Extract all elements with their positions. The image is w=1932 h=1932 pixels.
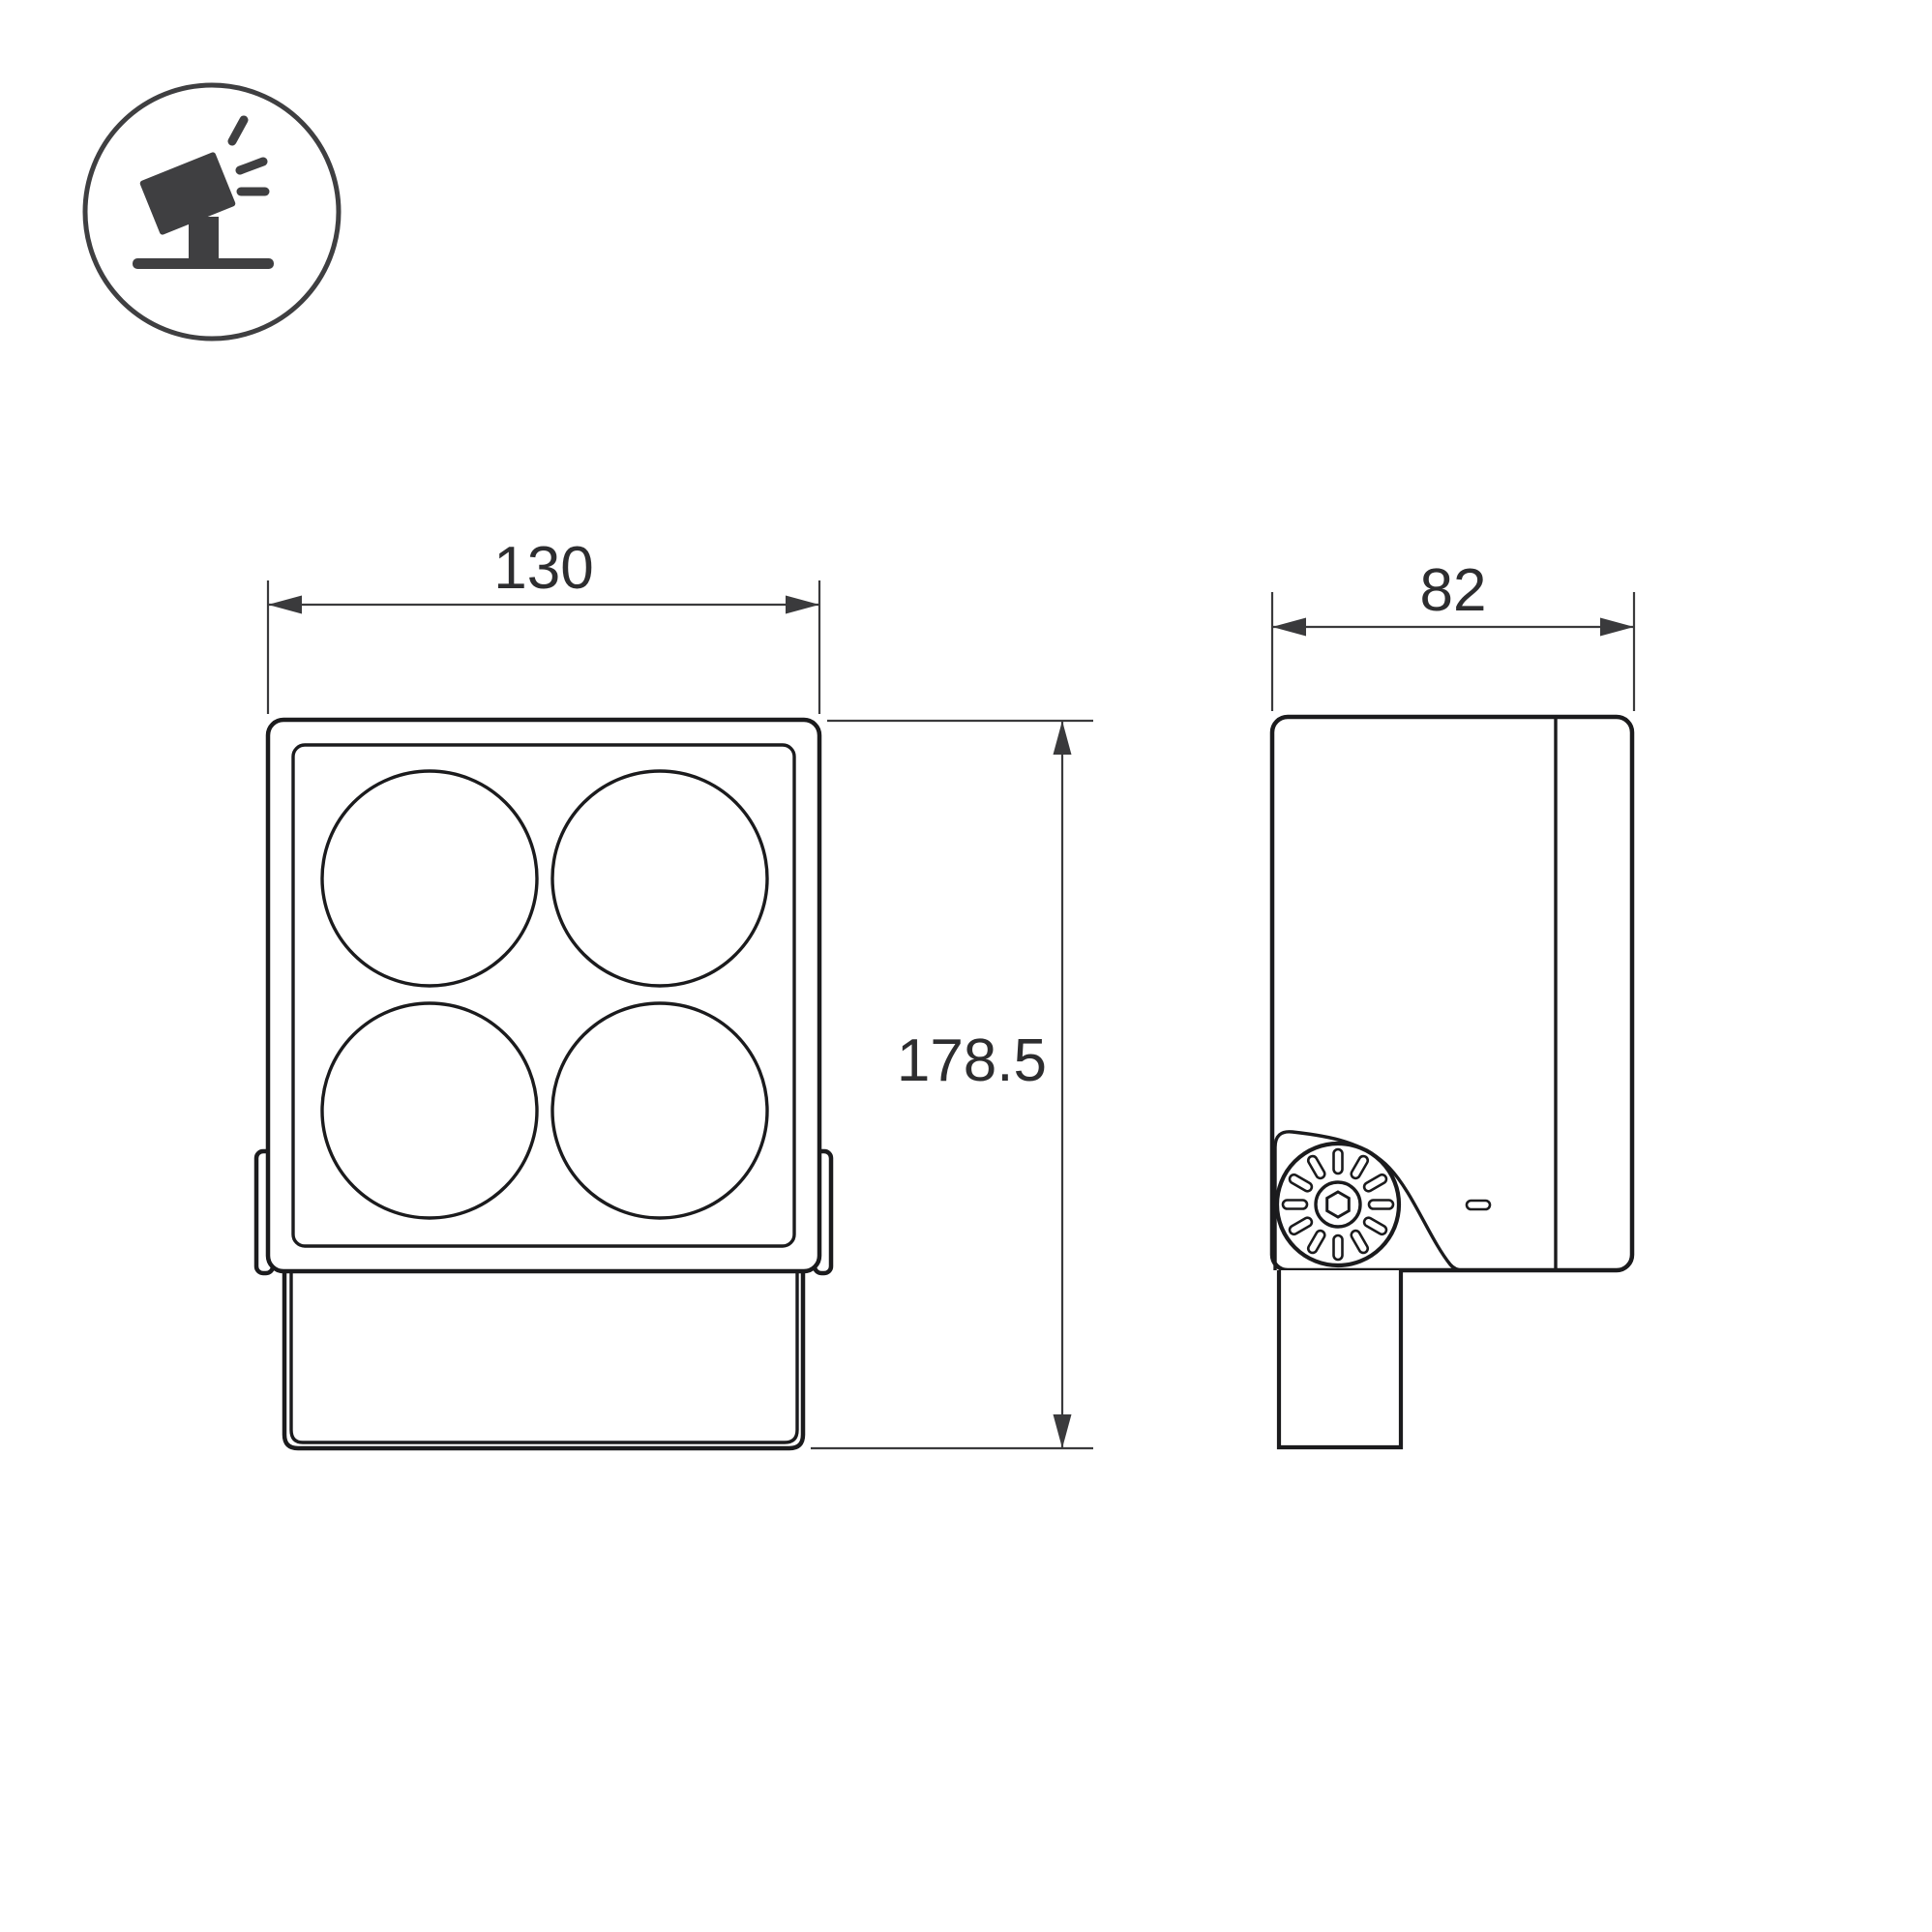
side-view (1272, 717, 1632, 1447)
arrowhead-right (1600, 618, 1634, 637)
dimension-drawing-page: 130 82 178.5 (0, 0, 1932, 1932)
floodlight-base (133, 258, 274, 269)
floodlight-post (189, 217, 219, 265)
dimension-label-depth: 82 (1420, 557, 1487, 624)
light-ray-icon (240, 162, 263, 170)
floodlight-icon (85, 85, 339, 339)
light-ray-icon (232, 120, 244, 141)
dimension-side-depth: 82 (1272, 557, 1634, 711)
arrowhead-left (1272, 618, 1306, 637)
floodlight-glyph (133, 120, 274, 269)
arrowhead-top (1054, 721, 1072, 755)
adjustment-knob (1277, 1144, 1399, 1265)
arrowhead-left (268, 596, 302, 614)
knob-outer (1277, 1144, 1399, 1265)
arrowhead-bottom (1054, 1414, 1072, 1448)
drawing-svg: 130 82 178.5 (0, 0, 1932, 1932)
front-view (256, 720, 831, 1448)
dimension-label-height: 178.5 (897, 1027, 1047, 1094)
dimension-overall-height: 178.5 (811, 721, 1093, 1448)
floodlight-head (139, 151, 236, 235)
arrowhead-right (786, 596, 819, 614)
mount-stem (1279, 1270, 1401, 1447)
dimension-label-width: 130 (493, 535, 593, 602)
dimension-front-width: 130 (268, 535, 819, 714)
